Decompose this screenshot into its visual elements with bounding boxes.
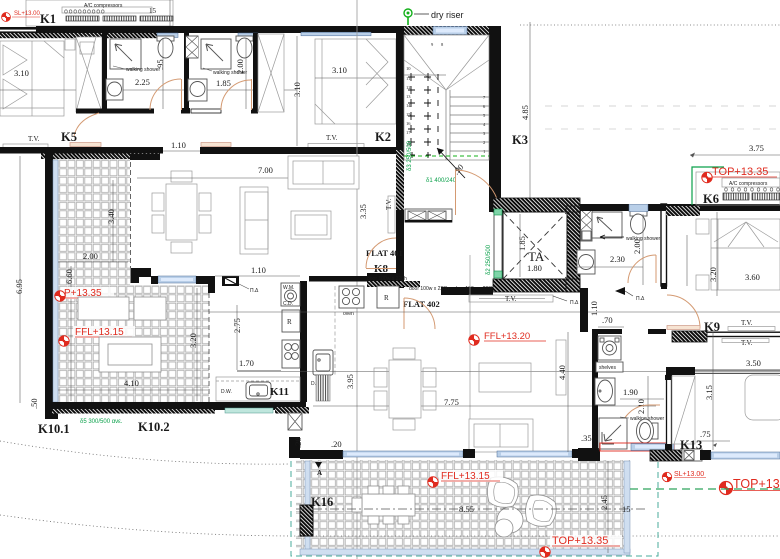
svg-text:7.00: 7.00 — [258, 165, 273, 175]
svg-text:3.10: 3.10 — [332, 65, 347, 75]
svg-text:3.35: 3.35 — [358, 204, 368, 219]
svg-text:FLAT 401: FLAT 401 — [366, 248, 403, 258]
svg-text:D.W.: D.W. — [221, 389, 232, 395]
svg-text:12: 12 — [406, 85, 411, 90]
svg-text:A/C compressors: A/C compressors — [84, 3, 123, 9]
svg-text:FFL+13.15: FFL+13.15 — [441, 471, 490, 482]
svg-text:T.V.: T.V. — [741, 319, 753, 327]
svg-text:.20: .20 — [293, 437, 303, 448]
svg-text:1.85: 1.85 — [216, 78, 231, 88]
svg-text:door 100w x 220h: door 100w x 220h — [367, 276, 407, 282]
svg-text:2.45: 2.45 — [599, 495, 609, 510]
svg-text:T.V.: T.V. — [28, 135, 40, 143]
svg-text:3.60: 3.60 — [745, 272, 760, 282]
svg-text:δ3 250/500: δ3 250/500 — [407, 140, 413, 171]
svg-text:FFL+13.15: FFL+13.15 — [75, 327, 124, 338]
svg-text:TOP+13.35: TOP+13.35 — [712, 166, 768, 178]
svg-text:T.V.: T.V. — [385, 198, 393, 210]
svg-text:.50: .50 — [29, 398, 39, 409]
svg-text:2.25: 2.25 — [135, 77, 150, 87]
svg-text:1.10: 1.10 — [171, 140, 186, 150]
svg-text:.20: .20 — [331, 439, 342, 449]
svg-text:FFL+13.20: FFL+13.20 — [484, 331, 530, 342]
svg-text:K2: K2 — [375, 130, 391, 144]
svg-text:3.40: 3.40 — [106, 209, 116, 224]
svg-text:shelves: shelves — [599, 365, 616, 371]
svg-text:R: R — [384, 294, 389, 302]
svg-text:C.D.: C.D. — [283, 301, 293, 307]
svg-text:14: 14 — [406, 103, 411, 108]
svg-text:K16: K16 — [311, 495, 333, 509]
svg-text:Π.Δ: Π.Δ — [250, 288, 259, 294]
svg-text:K10.2: K10.2 — [138, 420, 170, 434]
svg-text:.70: .70 — [602, 315, 613, 325]
svg-text:1.70: 1.70 — [239, 358, 254, 368]
svg-text:2.00: 2.00 — [235, 59, 245, 74]
svg-text:10: 10 — [406, 66, 411, 71]
svg-text:T.V.: T.V. — [741, 339, 753, 347]
svg-text:A: A — [317, 469, 322, 477]
svg-text:FLAT 402: FLAT 402 — [403, 299, 440, 309]
svg-text:1.85: 1.85 — [517, 236, 527, 251]
svg-text:K5: K5 — [61, 130, 77, 144]
svg-text:T.V.: T.V. — [505, 295, 517, 303]
svg-text:11: 11 — [406, 76, 410, 81]
svg-text:K1: K1 — [40, 12, 56, 26]
svg-text:1.10: 1.10 — [589, 301, 599, 316]
svg-text:2.00: 2.00 — [83, 251, 98, 261]
svg-text:K9: K9 — [704, 320, 720, 334]
svg-text:4.40: 4.40 — [557, 365, 567, 380]
svg-text:R: R — [287, 318, 292, 326]
svg-text:T.V.: T.V. — [326, 134, 338, 142]
svg-text:6.95: 6.95 — [14, 279, 24, 294]
svg-text:3.10: 3.10 — [14, 68, 29, 78]
svg-text:2.00: 2.00 — [632, 239, 642, 254]
svg-text:6.60: 6.60 — [64, 269, 74, 284]
svg-text:SL+13.00: SL+13.00 — [14, 11, 41, 17]
svg-text:2.30: 2.30 — [610, 254, 625, 264]
svg-text:3.95: 3.95 — [345, 374, 355, 389]
svg-text:3.20: 3.20 — [188, 333, 198, 348]
svg-text:2: 2 — [483, 140, 485, 145]
svg-text:ΤΑ: ΤΑ — [528, 249, 545, 264]
svg-text:4.85: 4.85 — [520, 105, 530, 120]
svg-text:SL+13.00: SL+13.00 — [674, 471, 704, 478]
svg-text:3.20: 3.20 — [708, 267, 718, 282]
svg-text:13: 13 — [406, 94, 411, 99]
svg-text:δ5 300/500 ανε.: δ5 300/500 ανε. — [80, 419, 123, 425]
svg-text:A/C compressors: A/C compressors — [729, 181, 768, 187]
svg-text:Π.Δ: Π.Δ — [570, 300, 579, 306]
svg-text:K11: K11 — [270, 386, 289, 398]
svg-text:1.90: 1.90 — [623, 387, 638, 397]
svg-text:16: 16 — [406, 121, 411, 126]
svg-text:15: 15 — [149, 7, 157, 15]
svg-text:17: 17 — [406, 130, 411, 135]
svg-text:.95: .95 — [155, 59, 165, 70]
svg-text:.35: .35 — [581, 433, 592, 443]
svg-text:7.75: 7.75 — [444, 397, 459, 407]
svg-text:3.75: 3.75 — [749, 143, 764, 153]
svg-text:dry riser: dry riser — [431, 10, 464, 20]
svg-text:δ1 400/240: δ1 400/240 — [426, 178, 457, 184]
svg-text:TOP+13.35: TOP+13.35 — [552, 535, 608, 547]
svg-text:3.50: 3.50 — [746, 358, 761, 368]
svg-text:K10.1: K10.1 — [38, 422, 70, 436]
svg-text:K6: K6 — [703, 192, 719, 206]
svg-text:15: 15 — [622, 504, 631, 514]
svg-text:K13: K13 — [680, 438, 702, 452]
svg-text:δ2 250/500: δ2 250/500 — [486, 244, 492, 275]
svg-text:1: 1 — [483, 149, 485, 154]
svg-text:3.15: 3.15 — [704, 385, 714, 400]
svg-text:1.80: 1.80 — [527, 263, 542, 273]
svg-text:W.M.: W.M. — [283, 285, 294, 291]
svg-text:K3: K3 — [512, 133, 528, 147]
svg-text:15: 15 — [406, 112, 411, 117]
svg-text:1.10: 1.10 — [251, 265, 266, 275]
svg-text:4.10: 4.10 — [124, 378, 139, 388]
svg-text:Π.Δ: Π.Δ — [636, 296, 645, 302]
